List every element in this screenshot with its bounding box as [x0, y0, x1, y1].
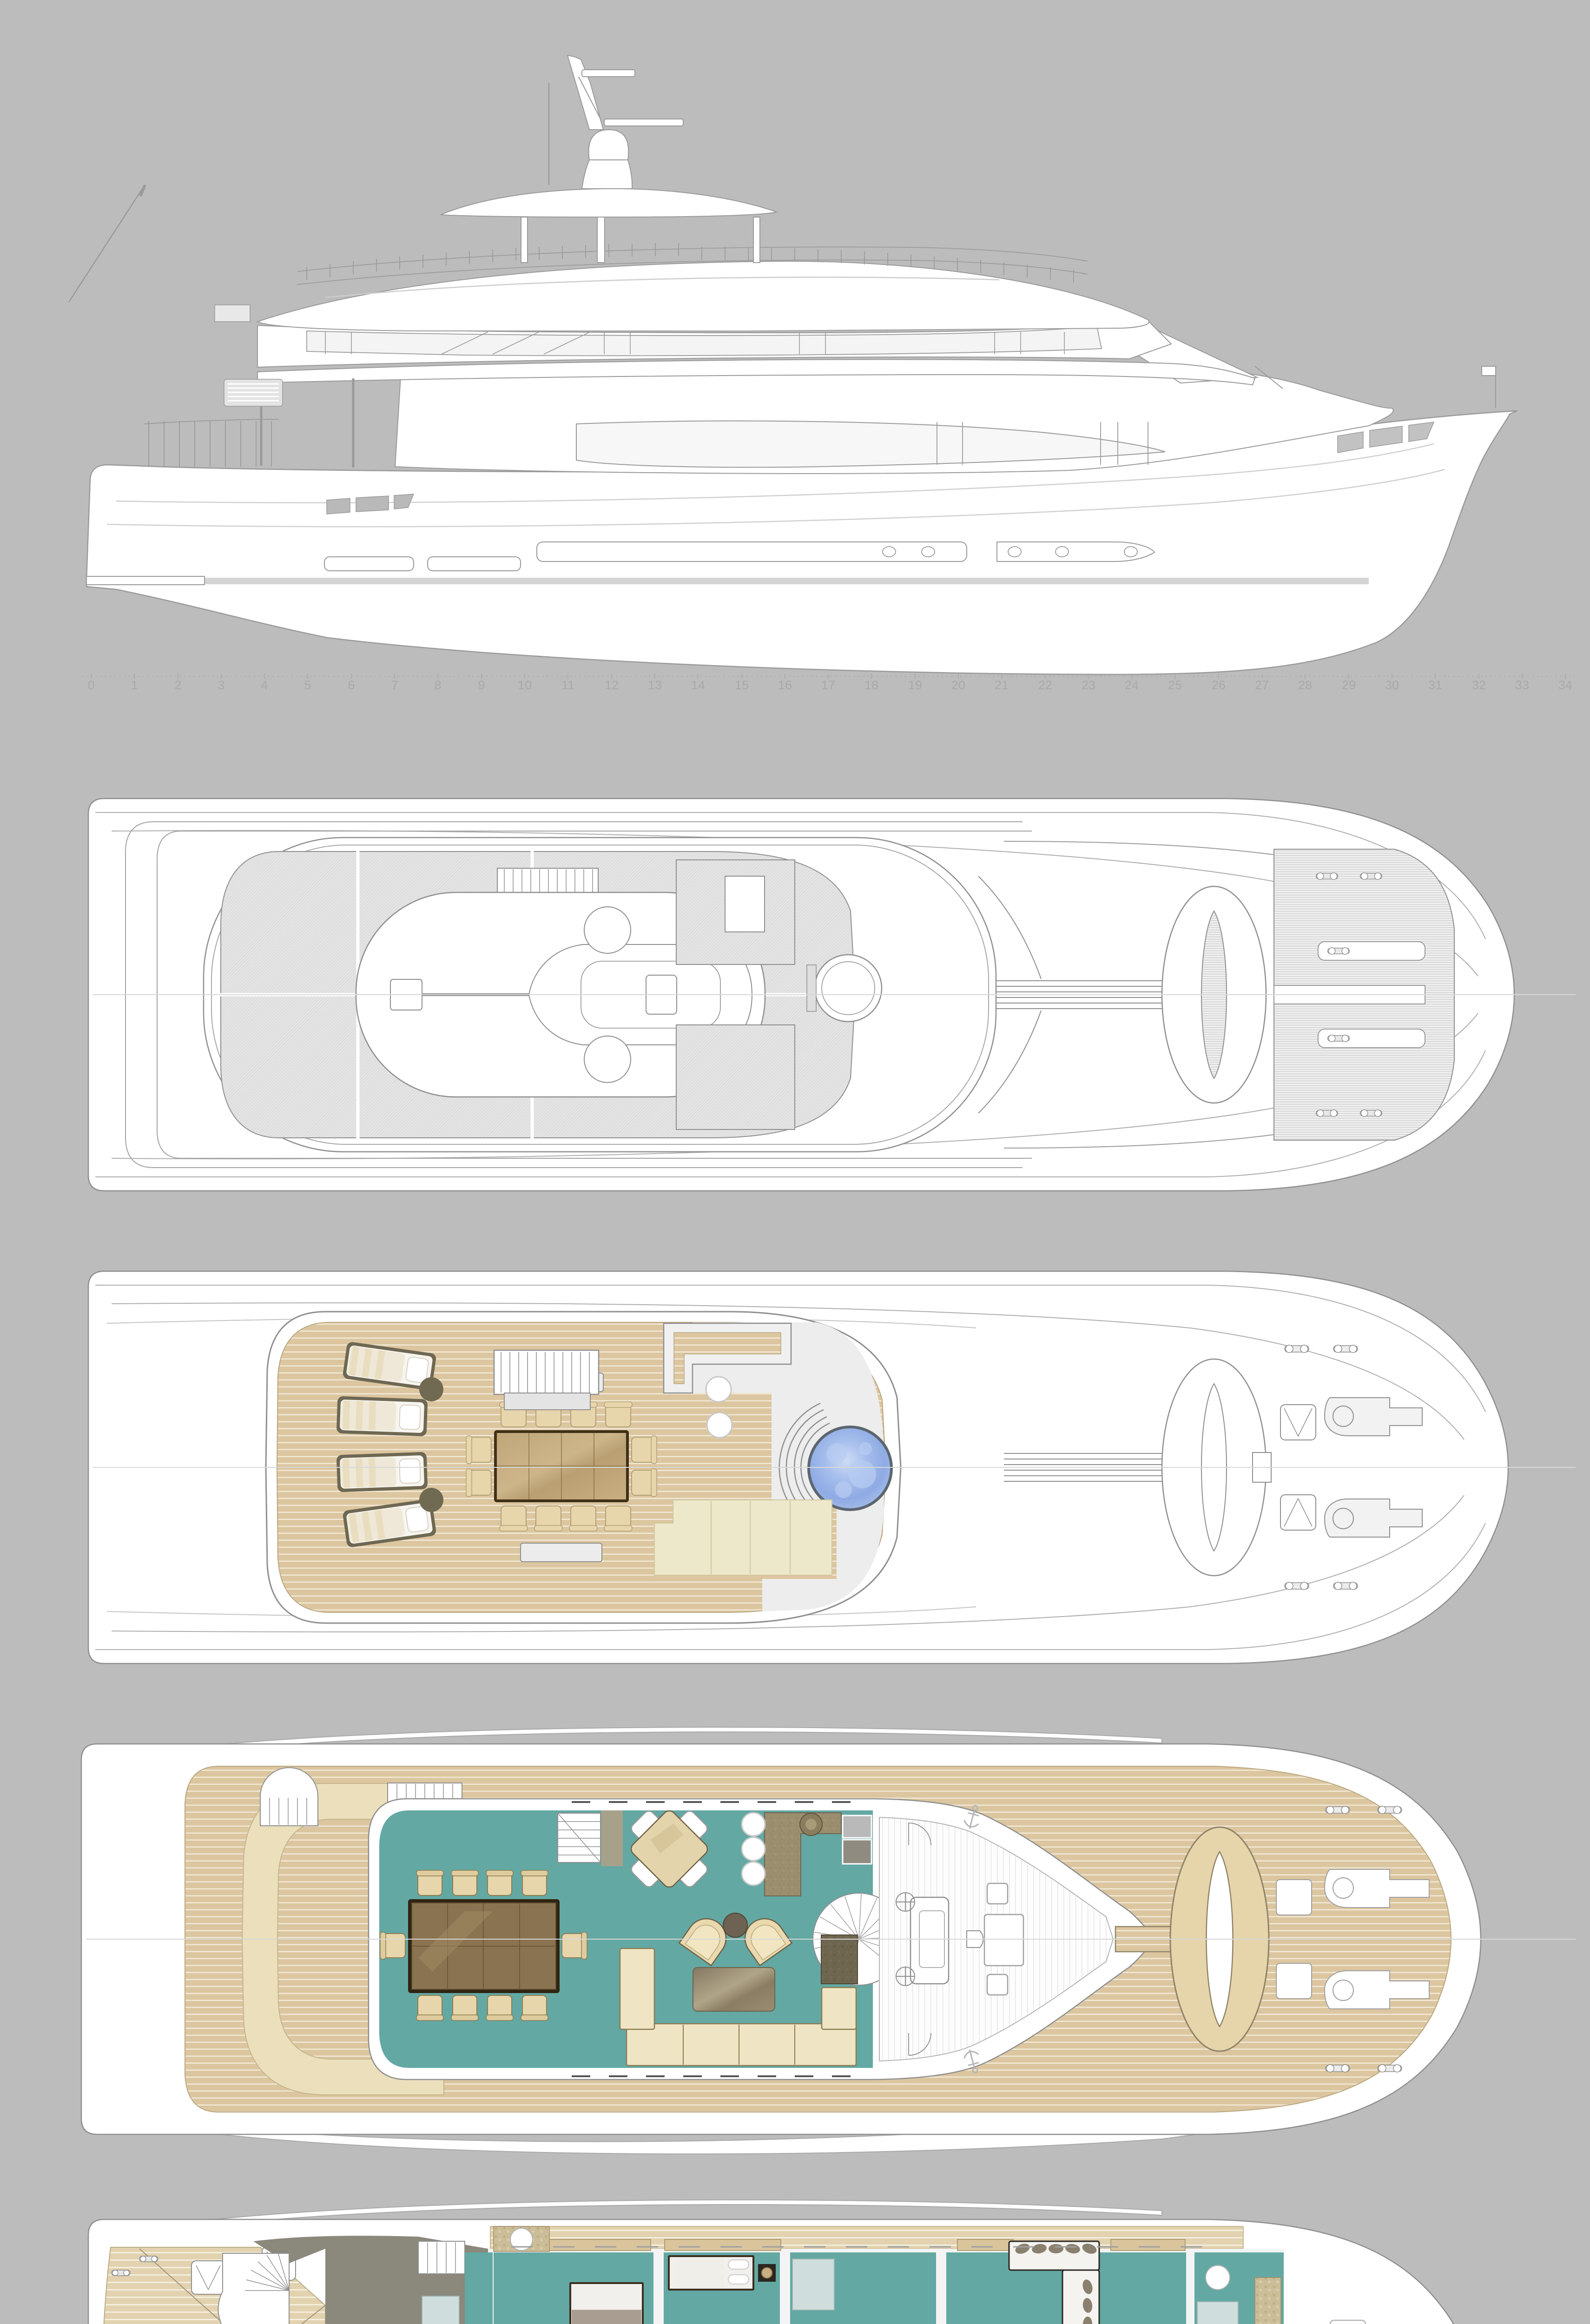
svg-text:27: 27	[1255, 678, 1269, 692]
svg-text:33: 33	[1515, 678, 1529, 692]
svg-text:29: 29	[1342, 678, 1356, 692]
svg-text:20: 20	[951, 678, 965, 692]
svg-text:31: 31	[1428, 678, 1442, 692]
svg-text:14: 14	[691, 678, 705, 692]
svg-text:3: 3	[218, 678, 224, 692]
svg-text:5: 5	[304, 678, 311, 692]
svg-text:30: 30	[1385, 678, 1399, 692]
svg-text:15: 15	[735, 678, 749, 692]
svg-text:0: 0	[87, 678, 94, 692]
svg-text:6: 6	[348, 678, 355, 692]
svg-text:19: 19	[908, 678, 922, 692]
svg-text:11: 11	[561, 678, 574, 692]
svg-text:13: 13	[648, 678, 662, 692]
svg-text:34: 34	[1558, 678, 1572, 692]
svg-text:32: 32	[1472, 678, 1486, 692]
svg-text:10: 10	[518, 678, 532, 692]
svg-text:16: 16	[778, 678, 792, 692]
svg-text:7: 7	[391, 678, 398, 692]
svg-text:17: 17	[821, 678, 835, 692]
svg-text:12: 12	[605, 678, 619, 692]
svg-text:28: 28	[1298, 678, 1312, 692]
svg-text:24: 24	[1125, 678, 1139, 692]
svg-text:9: 9	[478, 678, 485, 692]
svg-text:4: 4	[261, 678, 268, 692]
svg-text:26: 26	[1212, 678, 1226, 692]
svg-text:18: 18	[864, 678, 878, 692]
svg-text:22: 22	[1038, 678, 1052, 692]
svg-text:2: 2	[174, 678, 181, 692]
svg-text:8: 8	[434, 678, 441, 692]
svg-text:23: 23	[1082, 678, 1095, 692]
svg-text:25: 25	[1168, 678, 1182, 692]
svg-text:1: 1	[131, 678, 138, 692]
svg-text:21: 21	[995, 678, 1009, 692]
